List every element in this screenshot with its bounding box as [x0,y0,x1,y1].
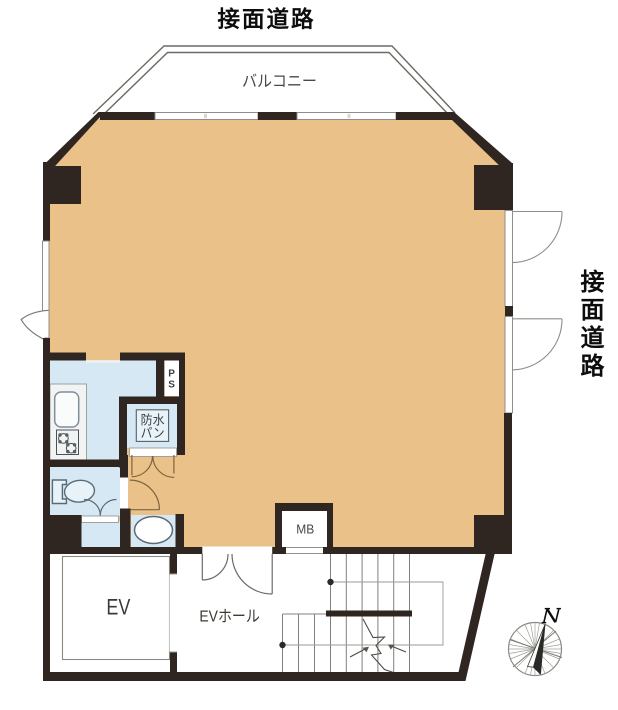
svg-text:バルコニー: バルコニー [242,74,317,91]
svg-text:MB: MB [296,522,314,537]
svg-text:面: 面 [581,297,605,324]
svg-text:EVホール: EVホール [199,609,260,626]
svg-text:P: P [168,369,175,380]
svg-text:パン: パン [141,426,165,441]
svg-text:路: 路 [581,352,606,380]
svg-text:EV: EV [106,595,130,620]
svg-text:道: 道 [581,324,605,352]
svg-text:S: S [168,380,175,391]
svg-text:接面道路: 接面道路 [217,6,315,32]
svg-text:接: 接 [581,269,605,296]
